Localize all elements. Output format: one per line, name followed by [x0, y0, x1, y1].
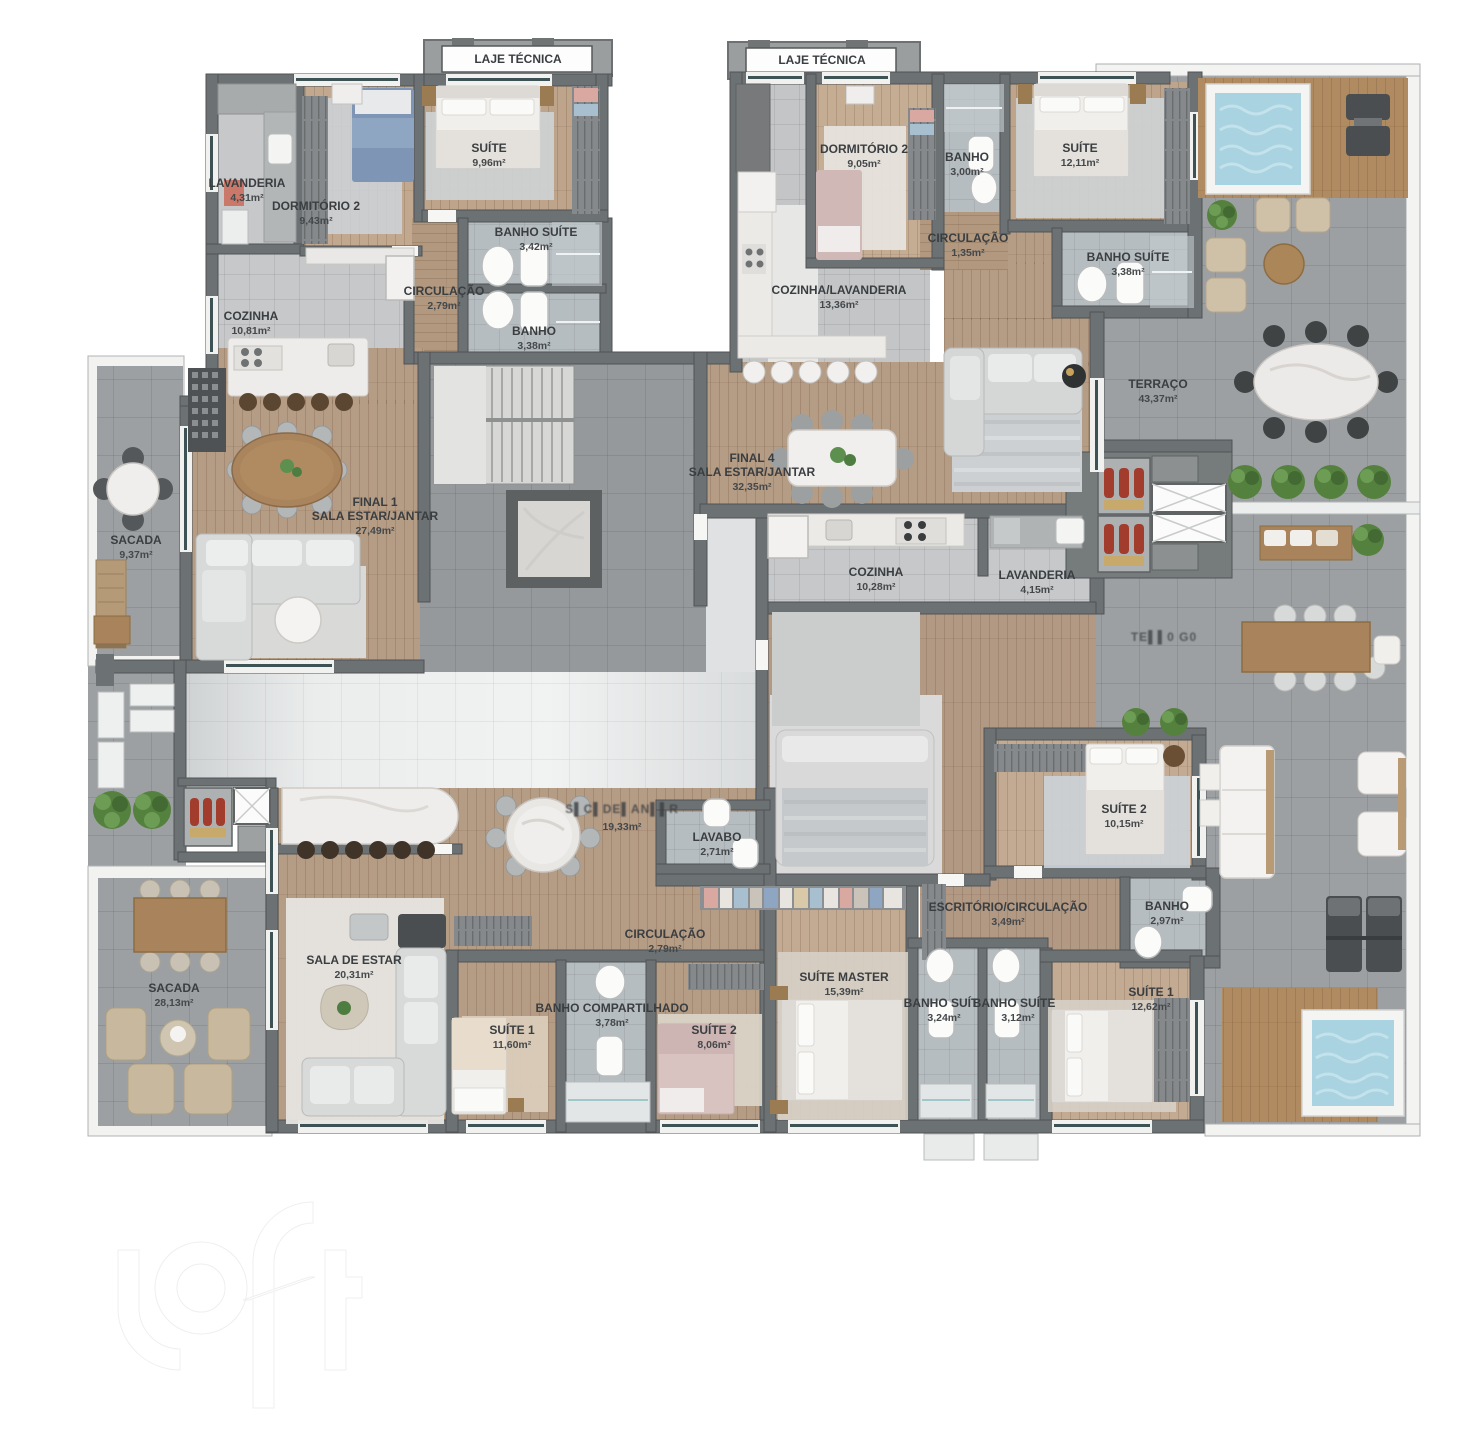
svg-text:BANHO: BANHO	[512, 324, 556, 338]
svg-text:BANHO SUÍTE: BANHO SUÍTE	[973, 995, 1056, 1010]
svg-text:BANHO COMPARTILHADO: BANHO COMPARTILHADO	[535, 1001, 688, 1015]
svg-text:9,96m²: 9,96m²	[472, 157, 506, 169]
svg-text:BANHO: BANHO	[945, 150, 989, 164]
svg-text:S▌C▌DE▌AN▌▌R: S▌C▌DE▌AN▌▌R	[565, 802, 679, 817]
svg-text:27,49m²: 27,49m²	[355, 525, 395, 537]
svg-text:11,60m²: 11,60m²	[493, 1039, 532, 1051]
svg-text:10,28m²: 10,28m²	[856, 581, 896, 593]
svg-text:FINAL 1: FINAL 1	[352, 495, 397, 509]
svg-text:SUÍTE: SUÍTE	[1062, 140, 1097, 155]
svg-text:3,78m²: 3,78m²	[595, 1017, 629, 1029]
svg-text:9,43m²: 9,43m²	[299, 215, 333, 227]
svg-text:SACADA: SACADA	[148, 981, 200, 995]
svg-text:ESCRITÓRIO/CIRCULAÇÃO: ESCRITÓRIO/CIRCULAÇÃO	[929, 899, 1088, 914]
svg-text:DORMITÓRIO 2: DORMITÓRIO 2	[272, 198, 360, 213]
svg-text:SUÍTE MASTER: SUÍTE MASTER	[799, 969, 889, 984]
svg-text:SALA DE ESTAR: SALA DE ESTAR	[306, 953, 402, 967]
svg-text:CIRCULAÇÃO: CIRCULAÇÃO	[404, 283, 485, 298]
svg-text:9,37m²: 9,37m²	[119, 549, 153, 561]
svg-text:32,35m²: 32,35m²	[732, 481, 772, 493]
svg-text:SUÍTE 1: SUÍTE 1	[489, 1022, 535, 1037]
svg-text:SUÍTE 2: SUÍTE 2	[1101, 801, 1147, 816]
svg-text:COZINHA: COZINHA	[224, 309, 279, 323]
svg-text:20,31m²: 20,31m²	[334, 969, 374, 981]
svg-text:BANHO SUÍTE: BANHO SUÍTE	[1087, 249, 1170, 264]
svg-text:4,15m²: 4,15m²	[1020, 584, 1054, 596]
svg-text:SUÍTE 1: SUÍTE 1	[1128, 984, 1174, 999]
svg-text:SALA ESTAR/JANTAR: SALA ESTAR/JANTAR	[689, 465, 816, 479]
svg-text:CIRCULAÇÃO: CIRCULAÇÃO	[928, 230, 1009, 245]
svg-text:3,42m²: 3,42m²	[519, 241, 553, 253]
svg-text:2,79m²: 2,79m²	[648, 943, 682, 955]
svg-text:3,49m²: 3,49m²	[991, 916, 1025, 928]
svg-text:10,15m²: 10,15m²	[1104, 818, 1144, 830]
svg-text:LAJE TÉCNICA: LAJE TÉCNICA	[778, 52, 866, 67]
svg-text:SUÍTE: SUÍTE	[471, 140, 506, 155]
svg-text:8,06m²: 8,06m²	[697, 1039, 731, 1051]
svg-text:LAVANDERIA: LAVANDERIA	[209, 176, 286, 190]
svg-text:10,81m²: 10,81m²	[231, 325, 271, 337]
svg-text:2,71m²: 2,71m²	[700, 846, 734, 858]
svg-text:43,37m²: 43,37m²	[1138, 393, 1178, 405]
svg-text:COZINHA/LAVANDERIA: COZINHA/LAVANDERIA	[772, 283, 907, 297]
svg-text:LAVANDERIA: LAVANDERIA	[999, 568, 1076, 582]
svg-text:19,33m²: 19,33m²	[602, 821, 642, 833]
svg-text:BANHO SUÍT: BANHO SUÍT	[904, 995, 979, 1010]
svg-text:DORMITÓRIO 2: DORMITÓRIO 2	[820, 141, 908, 156]
svg-text:LAVABO: LAVABO	[693, 830, 742, 844]
svg-text:12,11m²: 12,11m²	[1061, 157, 1100, 169]
svg-text:CIRCULAÇÃO: CIRCULAÇÃO	[625, 926, 706, 941]
svg-text:FINAL 4: FINAL 4	[729, 451, 774, 465]
svg-text:LAJE TÉCNICA: LAJE TÉCNICA	[474, 51, 562, 66]
svg-text:4,31m²: 4,31m²	[230, 192, 264, 204]
svg-text:13,36m²: 13,36m²	[819, 299, 859, 311]
svg-text:9,05m²: 9,05m²	[847, 158, 881, 170]
svg-text:3,24m²: 3,24m²	[927, 1012, 961, 1024]
svg-text:TE▌▌0 G0: TE▌▌0 G0	[1131, 630, 1197, 645]
svg-text:TERRAÇO: TERRAÇO	[1128, 377, 1187, 391]
svg-text:SALA ESTAR/JANTAR: SALA ESTAR/JANTAR	[312, 509, 439, 523]
svg-text:3,00m²: 3,00m²	[950, 166, 984, 178]
svg-text:1,35m²: 1,35m²	[951, 247, 985, 259]
svg-text:BANHO SUÍTE: BANHO SUÍTE	[495, 224, 578, 239]
svg-text:3,38m²: 3,38m²	[1111, 266, 1145, 278]
svg-text:2,79m²: 2,79m²	[427, 300, 461, 312]
svg-text:3,12m²: 3,12m²	[1001, 1012, 1035, 1024]
svg-text:COZINHA: COZINHA	[849, 565, 904, 579]
svg-text:15,39m²: 15,39m²	[824, 986, 864, 998]
svg-text:SUÍTE 2: SUÍTE 2	[691, 1022, 737, 1037]
svg-text:28,13m²: 28,13m²	[154, 997, 194, 1009]
svg-text:BANHO: BANHO	[1145, 899, 1189, 913]
svg-text:2,97m²: 2,97m²	[1150, 915, 1184, 927]
svg-text:12,62m²: 12,62m²	[1131, 1001, 1171, 1013]
svg-text:SACADA: SACADA	[110, 533, 162, 547]
svg-text:3,38m²: 3,38m²	[517, 340, 551, 352]
